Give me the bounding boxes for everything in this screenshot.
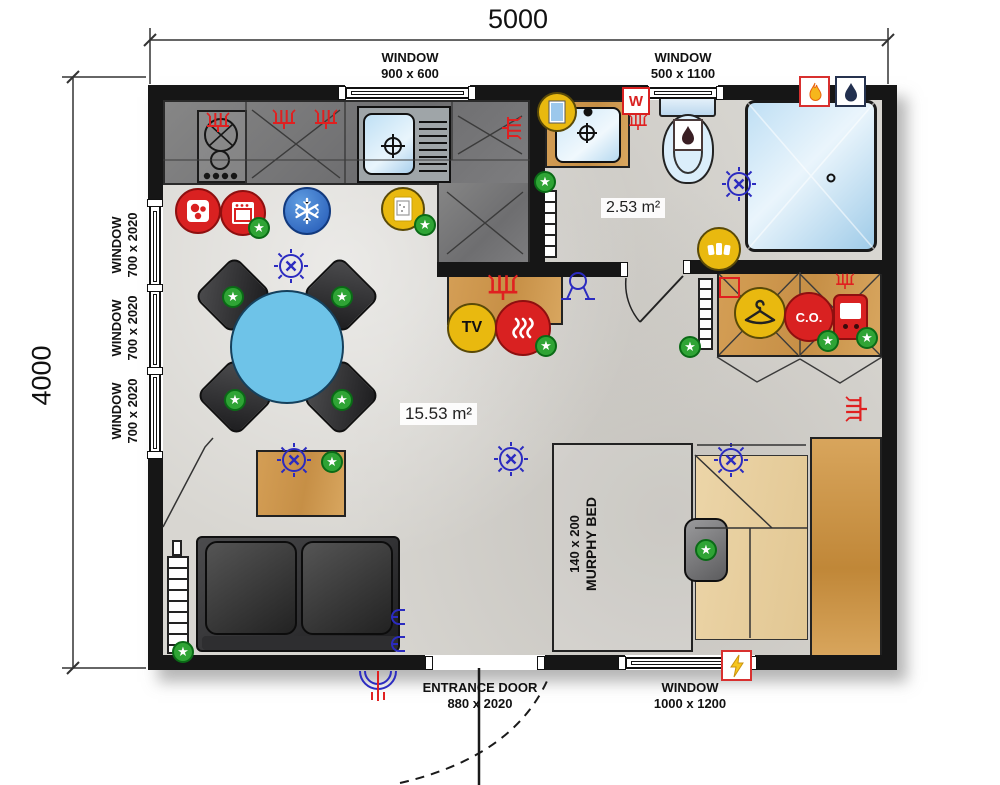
door-jamb xyxy=(620,262,628,277)
stove xyxy=(197,110,247,183)
window-jamb xyxy=(147,367,163,375)
hanger-icon xyxy=(734,287,786,339)
window-name: WINDOW xyxy=(610,680,770,696)
window-left-bottom-label: WINDOW 700 x 2020 xyxy=(109,346,141,476)
star-badge: ★ xyxy=(535,335,557,357)
star-badge: ★ xyxy=(172,641,194,663)
murphy-bed-size: 140 x 200 xyxy=(567,469,583,619)
wall-left-1 xyxy=(148,85,163,205)
sink-basin xyxy=(363,113,415,175)
star-icon: ★ xyxy=(539,174,551,189)
window-left-top xyxy=(149,205,161,288)
wall-bottom-3 xyxy=(755,655,897,670)
window-jamb xyxy=(716,86,724,100)
entrance-door-label: ENTRANCE DOOR 880 x 2020 xyxy=(390,680,570,712)
star-icon: ★ xyxy=(227,289,239,304)
dining-table xyxy=(230,290,344,404)
gas-flame-badge xyxy=(799,76,830,107)
star-badge: ★ xyxy=(321,451,343,473)
tv-label: TV xyxy=(462,319,482,337)
star-badge: ★ xyxy=(414,214,436,236)
window-size: 900 x 600 xyxy=(330,66,490,82)
star-badge: ★ xyxy=(534,171,556,193)
star-badge: ★ xyxy=(695,539,717,561)
star-icon: ★ xyxy=(229,392,241,407)
window-left-bottom xyxy=(149,371,161,455)
tv-badge: TV xyxy=(447,303,497,353)
star-icon: ★ xyxy=(336,289,348,304)
murphy-bed-label: 140 x 200 MURPHY BED xyxy=(567,469,599,619)
star-icon: ★ xyxy=(419,217,431,232)
dimension-top-label: 5000 xyxy=(488,4,548,35)
window-top-right-label: WINDOW 500 x 1100 xyxy=(603,50,763,82)
bathroom-area-label: 2.53 m² xyxy=(601,198,665,218)
star-icon: ★ xyxy=(540,338,552,353)
water-drop-badge xyxy=(673,119,703,151)
window-bottom-label: WINDOW 1000 x 1200 xyxy=(610,680,770,712)
washing-machine-badge: W xyxy=(622,87,650,115)
hob-icon xyxy=(175,188,221,234)
window-jamb xyxy=(147,451,163,459)
window-top-left xyxy=(345,87,470,99)
window-left-mid xyxy=(149,288,161,371)
sofa-front xyxy=(202,636,398,650)
star-badge: ★ xyxy=(331,286,353,308)
star-badge: ★ xyxy=(222,286,244,308)
sofa-cushion xyxy=(205,541,297,635)
toiletries-icon xyxy=(697,227,741,271)
kitchen-counter-arm xyxy=(437,183,530,264)
floor-plan: 5000 4000 WINDOW 900 x 600 WINDOW 500 x xyxy=(0,0,1000,785)
wall-bathroom-bottom xyxy=(437,262,628,277)
tall-cabinet xyxy=(810,437,882,657)
wall-top-1 xyxy=(148,85,345,100)
window-jamb xyxy=(147,284,163,292)
window-jamb xyxy=(468,86,476,100)
window-jamb xyxy=(618,656,626,670)
window-top-left-label: WINDOW 900 x 600 xyxy=(330,50,490,82)
window-name: WINDOW xyxy=(330,50,490,66)
main-room-area-label: 15.53 m² xyxy=(400,403,477,425)
door-jamb xyxy=(683,260,691,274)
window-jamb xyxy=(147,199,163,207)
window-size: 700 x 2020 xyxy=(125,346,141,476)
fridge-snowflake-icon xyxy=(283,187,331,235)
star-badge: ★ xyxy=(856,327,878,349)
window-jamb xyxy=(338,86,346,100)
window-size: 500 x 1100 xyxy=(603,66,763,82)
shower xyxy=(745,100,877,252)
co-label: C.O. xyxy=(796,310,823,325)
sofa-cushion xyxy=(301,541,393,635)
star-icon: ★ xyxy=(177,644,189,659)
star-badge: ★ xyxy=(224,389,246,411)
wall-bottom-2 xyxy=(545,655,625,670)
star-badge: ★ xyxy=(331,389,353,411)
star-icon: ★ xyxy=(326,454,338,469)
star-badge: ★ xyxy=(248,217,270,239)
wall-left-2 xyxy=(148,455,163,670)
water-supply-badge xyxy=(835,76,866,107)
sofa xyxy=(196,536,400,652)
window-name: WINDOW xyxy=(109,346,125,476)
star-icon: ★ xyxy=(684,339,696,354)
star-icon: ★ xyxy=(861,330,873,345)
murphy-bed-name: MURPHY BED xyxy=(583,469,599,619)
wall-right xyxy=(882,85,897,670)
star-badge: ★ xyxy=(679,336,701,358)
boiler-screen xyxy=(840,303,861,319)
star-icon: ★ xyxy=(700,542,712,557)
electricity-badge xyxy=(721,650,752,681)
star-icon: ★ xyxy=(822,333,834,348)
star-icon: ★ xyxy=(336,392,348,407)
dimension-left-label: 4000 xyxy=(27,346,58,406)
radiator xyxy=(167,556,189,654)
radiator-vertical xyxy=(698,278,713,350)
door-jamb xyxy=(425,656,433,670)
door-size: 880 x 2020 xyxy=(390,696,570,712)
kitchen-sink-unit xyxy=(357,106,451,183)
window-size: 1000 x 1200 xyxy=(610,696,770,712)
door-name: ENTRANCE DOOR xyxy=(390,680,570,696)
radiator-valve xyxy=(172,540,182,556)
sink-drainer xyxy=(419,116,447,174)
washing-machine-label: W xyxy=(629,93,643,110)
boiler-knob xyxy=(854,324,859,329)
mirror-icon xyxy=(537,92,577,132)
star-badge: ★ xyxy=(817,330,839,352)
window-top-right xyxy=(648,87,718,99)
door-jamb xyxy=(537,656,545,670)
boiler-knob xyxy=(843,324,848,329)
window-name: WINDOW xyxy=(603,50,763,66)
star-icon: ★ xyxy=(253,220,265,235)
